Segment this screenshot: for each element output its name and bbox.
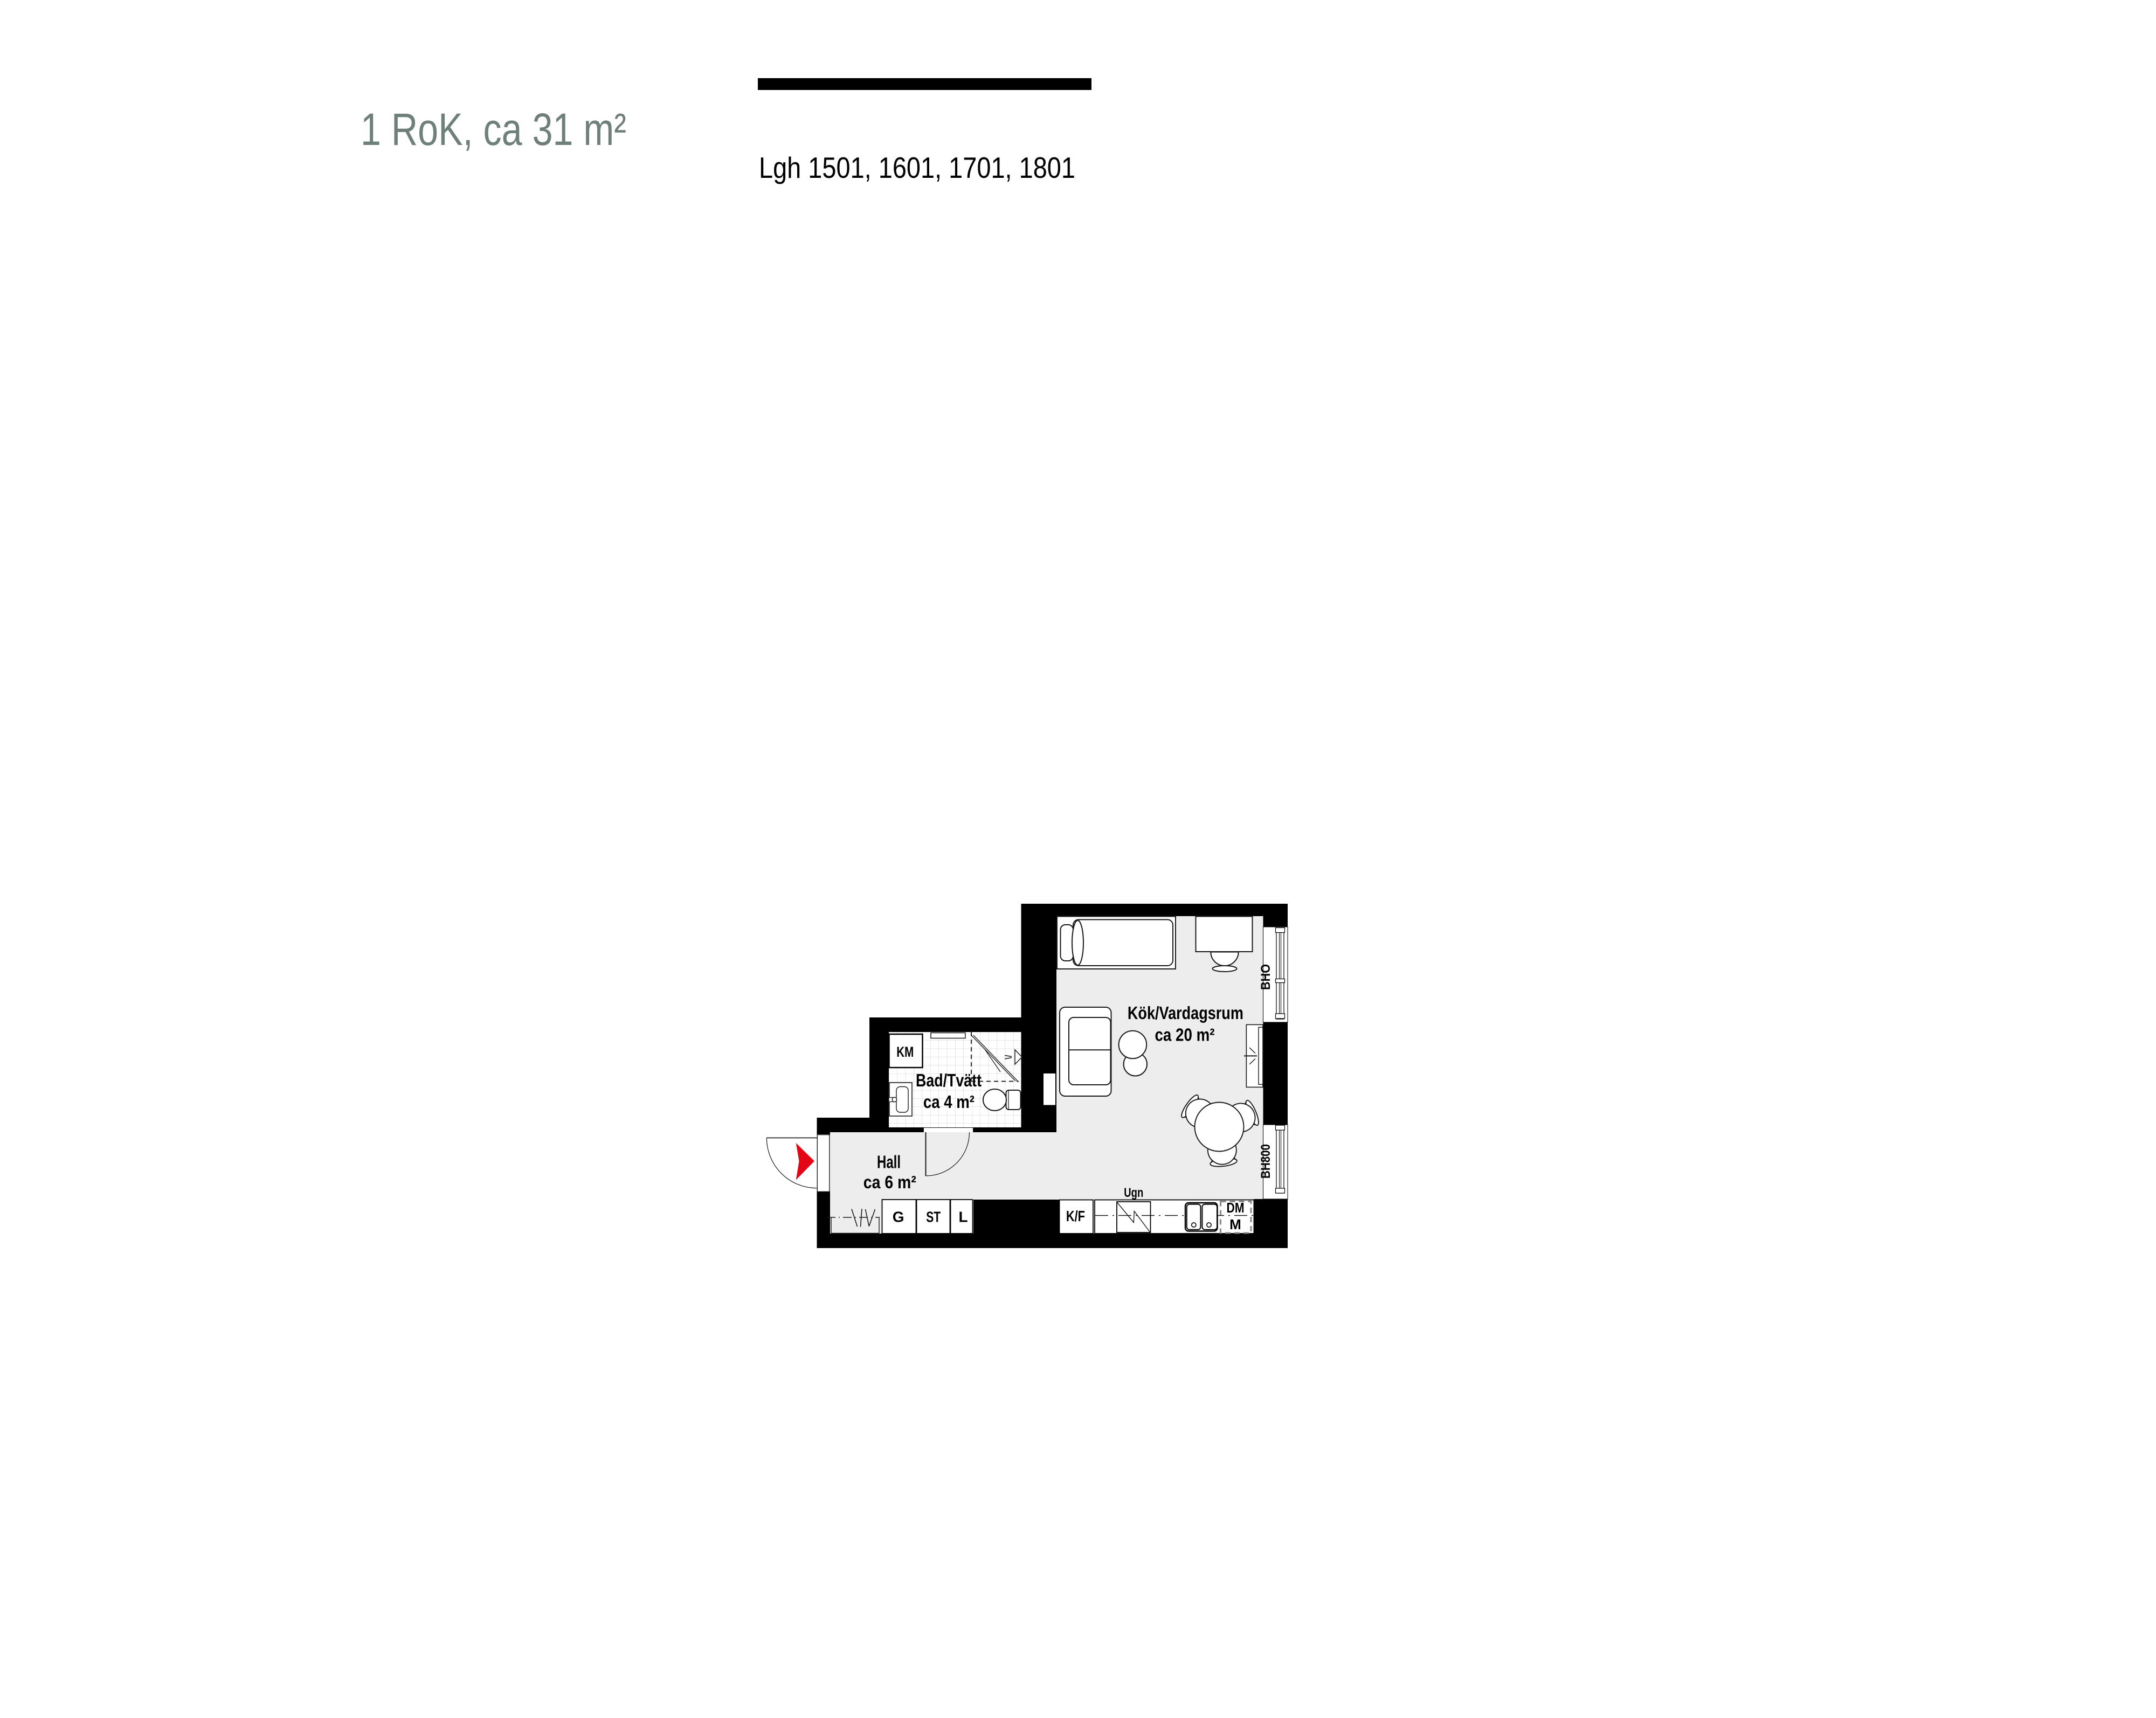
svg-text:Ugn: Ugn xyxy=(1124,1186,1143,1200)
svg-text:ca 4 m²: ca 4 m² xyxy=(923,1092,975,1112)
svg-text:Lgh 1501, 1601, 1701, 1801: Lgh 1501, 1601, 1701, 1801 xyxy=(759,151,1075,184)
svg-text:L: L xyxy=(958,1209,968,1225)
svg-text:ca 20 m²: ca 20 m² xyxy=(1155,1025,1215,1045)
svg-text:M: M xyxy=(1229,1216,1241,1232)
svg-text:DM: DM xyxy=(1227,1200,1245,1216)
svg-text:K/F: K/F xyxy=(1066,1208,1085,1224)
svg-text:Bad/Tvätt: Bad/Tvätt xyxy=(916,1070,982,1090)
svg-text:1 RoK, ca 31 m²: 1 RoK, ca 31 m² xyxy=(361,104,626,155)
svg-text:ST: ST xyxy=(926,1209,941,1225)
svg-text:Hall: Hall xyxy=(877,1152,901,1172)
svg-text:BH800: BH800 xyxy=(1259,1144,1273,1179)
svg-text:Kök/Vardagsrum: Kök/Vardagsrum xyxy=(1128,1003,1243,1023)
svg-text:KM: KM xyxy=(896,1044,914,1060)
svg-text:BHO: BHO xyxy=(1259,964,1273,990)
svg-text:G: G xyxy=(893,1209,904,1225)
svg-text:ca 6 m²: ca 6 m² xyxy=(863,1172,916,1192)
